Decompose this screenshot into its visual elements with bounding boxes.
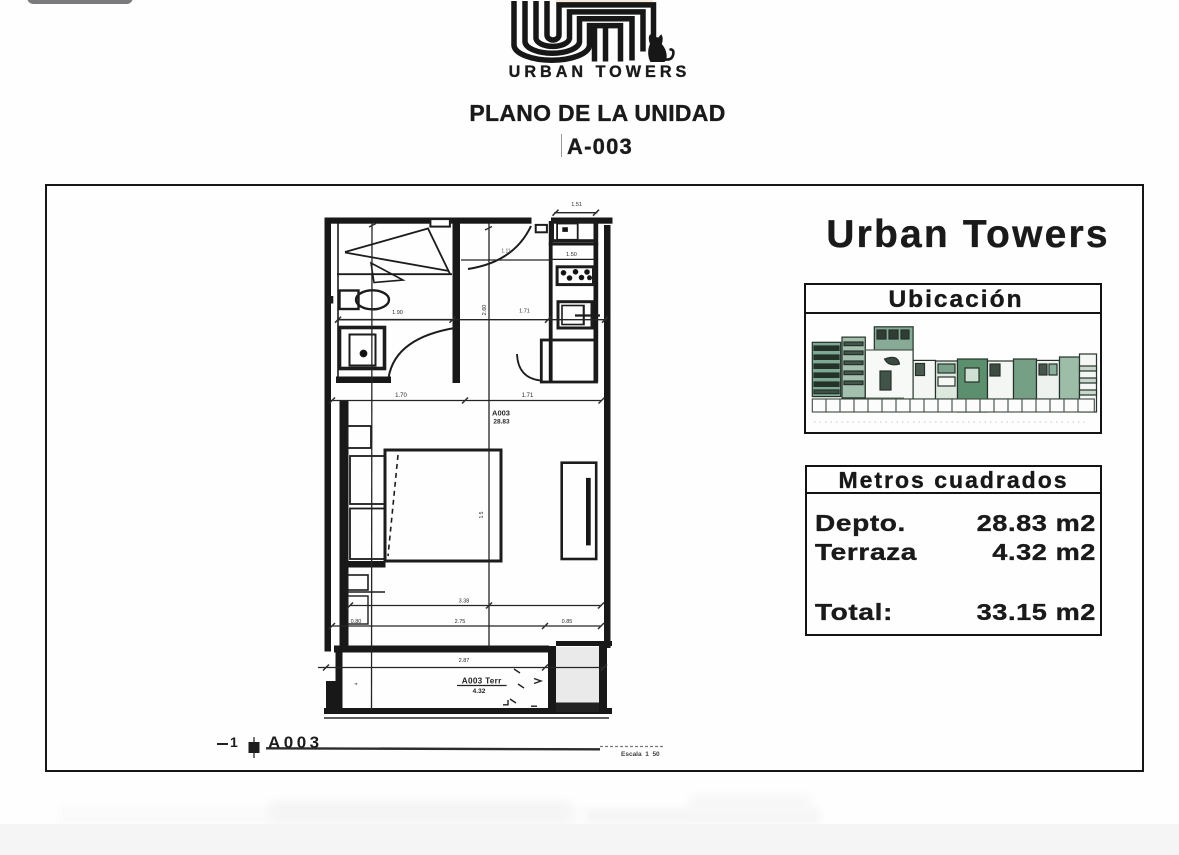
svg-text:1.70: 1.70: [395, 393, 407, 399]
svg-text:1: 1: [230, 734, 238, 750]
svg-text:4.32: 4.32: [473, 688, 486, 695]
svg-text:1.71: 1.71: [522, 393, 534, 399]
svg-text:Escala 1 50: Escala 1 50: [621, 751, 660, 758]
svg-text:2.75: 2.75: [455, 619, 466, 625]
svg-text:0.80: 0.80: [351, 619, 362, 625]
svg-text:1.51: 1.51: [571, 202, 582, 208]
svg-text:2.60: 2.60: [482, 305, 488, 316]
svg-text:1.71: 1.71: [519, 309, 530, 315]
svg-text:1.5: 1.5: [479, 511, 485, 518]
svg-text:28.83: 28.83: [493, 419, 510, 426]
svg-text:1.90: 1.90: [392, 310, 403, 316]
svg-text:1.11: 1.11: [501, 249, 511, 255]
svg-text:3.38: 3.38: [459, 599, 470, 605]
svg-text:A003 Terr: A003 Terr: [462, 677, 502, 686]
svg-text:4: 4: [354, 682, 359, 685]
svg-text:A003: A003: [492, 409, 510, 418]
svg-text:0.85: 0.85: [562, 619, 573, 625]
svg-text:1.50: 1.50: [566, 252, 577, 258]
svg-text:2.87: 2.87: [459, 658, 470, 664]
